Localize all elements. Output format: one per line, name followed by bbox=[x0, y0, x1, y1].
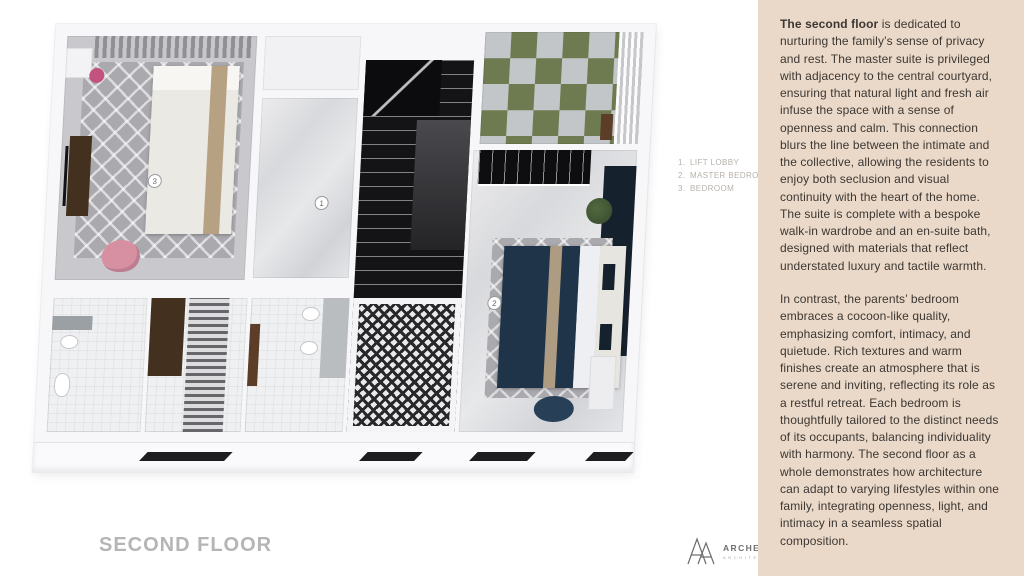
bedroom-3-bed bbox=[145, 66, 240, 234]
sink bbox=[301, 342, 318, 354]
marker-2-number: 2 bbox=[492, 299, 497, 308]
stair-landing bbox=[410, 120, 471, 250]
facade-window bbox=[469, 452, 536, 461]
master-window-band bbox=[478, 150, 592, 186]
tv-console bbox=[66, 136, 92, 216]
accent-pillow bbox=[602, 264, 615, 290]
paragraph-1: The second floor is dedicated to nurturi… bbox=[780, 16, 1002, 275]
master-bed-blanket bbox=[497, 246, 580, 388]
sink bbox=[61, 336, 78, 348]
terrace-garden bbox=[480, 32, 644, 144]
bed-throw bbox=[203, 66, 228, 234]
curtains bbox=[94, 36, 253, 58]
legend-num: 1. bbox=[678, 156, 690, 169]
marker-1-number: 1 bbox=[319, 199, 324, 208]
bathroom-1 bbox=[47, 298, 148, 432]
floor-title: SECOND FLOOR bbox=[99, 534, 272, 557]
stair-rail bbox=[363, 60, 442, 116]
bathroom-2 bbox=[245, 298, 350, 432]
wardrobe-carpet bbox=[183, 298, 230, 432]
terrace-planter bbox=[600, 114, 613, 140]
logo-monogram-icon bbox=[686, 537, 718, 565]
master-bedroom-room bbox=[459, 150, 638, 432]
legend-num: 2. bbox=[678, 169, 690, 182]
marker-3-number: 3 bbox=[152, 177, 157, 186]
facade-window bbox=[359, 452, 423, 461]
bathroom-door bbox=[247, 324, 260, 386]
wardrobe-cabinet bbox=[148, 298, 186, 376]
paragraph-1-body: is dedicated to nurturing the family’s s… bbox=[780, 17, 992, 273]
legend-num: 3. bbox=[678, 182, 690, 195]
walk-in-wardrobe bbox=[145, 298, 248, 432]
paragraph-1-lead: The second floor bbox=[780, 17, 878, 31]
sink bbox=[302, 308, 319, 320]
building-slab-face bbox=[32, 442, 634, 473]
floor-plan: 1 2 3 bbox=[33, 24, 656, 472]
bath-counter bbox=[52, 316, 93, 330]
armchair-pink bbox=[101, 240, 141, 272]
lift-lobby-room bbox=[253, 98, 358, 278]
staircase bbox=[354, 60, 474, 298]
accent-pillow bbox=[599, 324, 612, 350]
toilet bbox=[55, 374, 70, 396]
terrace-louver-screen bbox=[614, 32, 644, 144]
ottoman-navy bbox=[533, 396, 574, 422]
bath-counter bbox=[319, 298, 349, 378]
paragraph-2: In contrast, the parents’ bedroom embrac… bbox=[780, 291, 1002, 550]
legend-label: LIFT LOBBY bbox=[690, 156, 739, 169]
legend-label: BEDROOM bbox=[690, 182, 734, 195]
closet-room bbox=[263, 36, 362, 90]
facade-window bbox=[139, 452, 233, 461]
facade-window bbox=[585, 452, 634, 461]
chaise-seat bbox=[588, 356, 617, 410]
text-panel: The second floor is dedicated to nurturi… bbox=[758, 0, 1024, 576]
bedroom-3-room bbox=[55, 36, 258, 280]
ensuite-bath bbox=[347, 298, 462, 432]
